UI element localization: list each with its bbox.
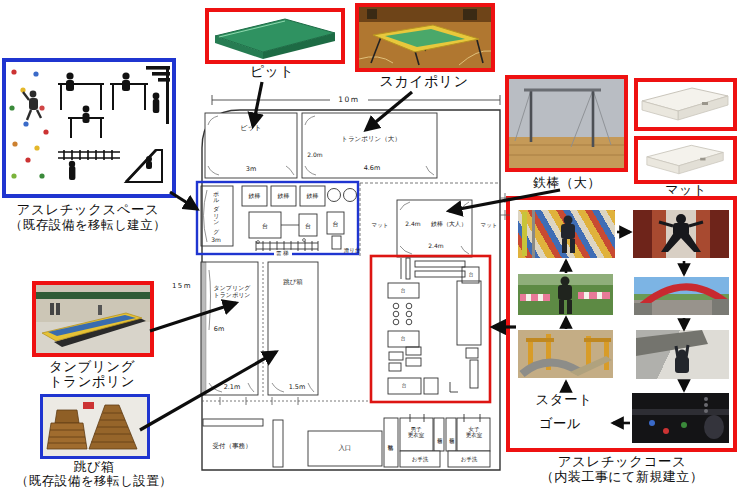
mat-caption: マット	[665, 183, 706, 198]
plan-bouldering-label: ボルダリング	[213, 186, 219, 232]
plan-vault-width: 1.5m	[289, 384, 306, 391]
athletic-space-box	[2, 58, 176, 198]
plan-width-dim: 10m	[336, 96, 361, 104]
mat-illustration	[638, 140, 733, 180]
plan-mat-left: マット	[372, 222, 389, 228]
course-photo-wooden-course	[518, 330, 613, 378]
course-photo-warped-wall	[634, 277, 729, 315]
course-photo-spider-walk	[633, 210, 729, 258]
plan-tumbling-width: 2.1m	[224, 384, 241, 391]
big-bar-illustration	[509, 79, 624, 168]
plan-pit-label: ピット	[240, 125, 262, 133]
figures-on-bars-icon	[66, 72, 130, 123]
course-start-label: スタート	[536, 392, 593, 407]
climbing-holds-icon	[9, 69, 48, 178]
plan-dai-red-4: 台	[402, 383, 407, 389]
ladder-icon	[58, 150, 120, 160]
plan-dai-2: 台	[305, 223, 311, 230]
red-zone-equipment	[388, 258, 481, 394]
plan-dai-red-1: 台	[469, 272, 474, 278]
athletic-course-box	[506, 196, 737, 452]
plan-mat-right: マット	[481, 222, 498, 228]
climber-icon	[23, 91, 41, 120]
callout-arrows	[140, 82, 560, 430]
sky-trampoline-illustration	[359, 7, 491, 68]
plan-dai-1: 台	[262, 223, 268, 230]
plan-tetsubo-3: 鉄棒	[307, 193, 319, 200]
plan-shoes-label: 靴箱	[388, 440, 394, 442]
plan-suberidai-label: 滑り台	[344, 247, 361, 253]
slide-icon	[126, 150, 162, 182]
plan-trampoline-height: 2.0m	[307, 152, 322, 159]
plan-luggage-2: 荷物	[448, 433, 454, 435]
circle-equipment-1	[328, 189, 341, 202]
mat-photo-1	[634, 78, 737, 131]
athletic-space-icons	[6, 62, 172, 194]
course-photo-field-obstacles	[518, 274, 613, 315]
service-rooms	[203, 414, 490, 467]
mat-photo-2	[634, 136, 737, 184]
plan-mens-label: 男子 更衣室	[408, 426, 425, 438]
vault-illustration	[43, 397, 147, 456]
plan-luggage-1: 荷物	[436, 433, 442, 435]
plan-toilet-2: お手洗	[461, 456, 478, 462]
plan-untei-label: 雲梯	[274, 250, 292, 256]
plan-adult-bar-w: 2.4m	[405, 221, 420, 228]
vault-caption-subtitle: （既存設備を移転し設置）	[16, 474, 173, 488]
course-photo-climbing-wall	[518, 210, 615, 258]
plan-womens-label: 女子 更衣室	[466, 426, 483, 438]
plan-tetsubo-1: 鉄棒	[249, 193, 261, 200]
plan-vault-label: 跳び箱	[283, 279, 303, 286]
course-caption-title: アスレチックコース	[558, 454, 687, 469]
mat-illustration	[638, 82, 733, 127]
plan-toilet-1: お手洗	[412, 456, 429, 462]
course-goal-label: ゴール	[539, 416, 582, 431]
course-photo-goal	[632, 393, 729, 443]
vault-photo	[40, 394, 150, 459]
pit-photo	[205, 8, 345, 64]
plan-trampoline-width: 4.6m	[364, 165, 381, 172]
tumbling-caption: タンブリング トランポリン	[49, 359, 135, 389]
course-photo-ledge-hang	[636, 330, 729, 379]
plan-dai-red-3: 台	[401, 336, 406, 342]
plan-trampoline-label: トランポリン（大）	[341, 136, 400, 143]
facility-diagram: ピット スカイポリン アスレチックスペース （既存設備を移転し建立） 鉄棒（大）…	[0, 0, 740, 494]
slide-box	[332, 236, 341, 249]
plan-dai-3: 台	[333, 221, 339, 228]
pit-caption: ピット	[250, 64, 294, 80]
red-zone	[371, 256, 490, 402]
big-bar-photo	[505, 75, 628, 172]
plan-height-dim: 15m	[170, 283, 194, 291]
tumbling-room	[201, 262, 258, 395]
plan-adult-bar-h: 2.4m	[428, 243, 443, 250]
athletic-space-title: アスレチックスペース	[17, 202, 160, 217]
circle-equipment-2	[344, 189, 357, 202]
monkey-bars-icon	[58, 84, 148, 138]
plan-adult-bar-label: 鉄棒（大人）	[431, 221, 467, 228]
athletic-space-subtitle: （既存設備を移転し建立）	[10, 218, 167, 232]
tumbling-illustration	[36, 285, 150, 353]
big-bar-caption: 鉄棒（大）	[533, 176, 601, 191]
hanging-figure-icon	[153, 93, 160, 113]
plan-tumbling-height: 6m	[214, 326, 224, 333]
pit-mat-illustration	[209, 12, 341, 60]
tumbling-photo	[32, 281, 154, 357]
plan-tumbling-label: タンブリング トランポリン	[214, 285, 251, 298]
plan-dai-red-2: 台	[401, 288, 406, 294]
ladder-figure-icon	[69, 161, 76, 180]
sky-trampoline-caption: スカイポリン	[380, 74, 469, 90]
plan-entrance-label: 入口	[339, 445, 352, 452]
plan-reception-label: 受付（事務）	[213, 443, 252, 450]
plan-tetsubo-2: 鉄棒	[278, 193, 290, 200]
plan-pit-width: 3m	[246, 166, 256, 173]
sky-trampoline-photo	[355, 3, 495, 72]
plan-bouldering-height: 3m	[211, 237, 221, 244]
course-caption-subtitle: （内装工事にて新規建立）	[541, 470, 704, 485]
